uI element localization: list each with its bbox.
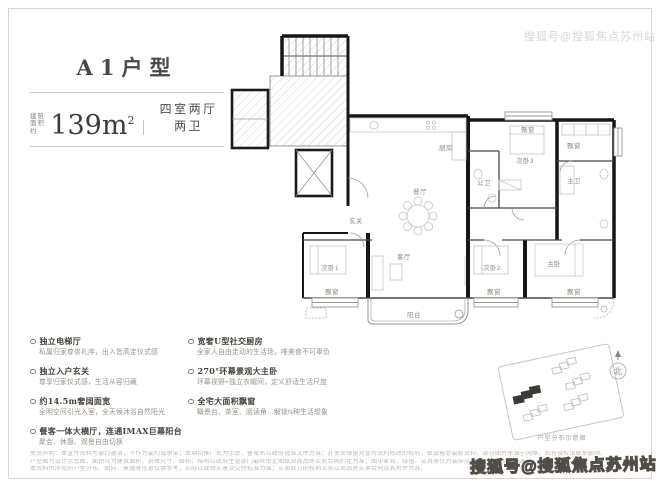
north-compass-icon: 北 <box>606 350 630 382</box>
bullet-icon <box>188 339 194 345</box>
bay-label-bed2: 飘窗 <box>487 287 501 296</box>
room-label-master: 主卧 <box>547 259 561 268</box>
bay-label-right: 飘窗 <box>567 141 581 150</box>
feature-title: 约14.5m奢阔面宽 <box>40 396 111 406</box>
feature-item: 餐客一体大横厅，连通IMAX巨幕阳台 聚会、休憩、观景自由切换 <box>30 426 185 447</box>
feature-title: 独立入户玄关 <box>40 366 90 376</box>
feature-desc: 环幕视野+独立衣帽间，定义舒适生活尺度 <box>197 378 368 387</box>
bullet-icon <box>188 399 194 405</box>
area-prefix-line2: 面积约 <box>30 120 48 135</box>
duct-shaft <box>232 90 268 148</box>
feature-title: 宽奢U型社交厨房 <box>198 336 263 346</box>
feature-desc: 全家人自由走动的生活场，唯美食不可辜负 <box>197 348 368 357</box>
key-plan-buildings <box>499 345 622 438</box>
stairs <box>282 36 348 76</box>
feature-item: 270°环幕景观大主卧 环幕视野+独立衣帽间，定义舒适生活尺度 <box>188 366 368 387</box>
furniture <box>310 118 610 290</box>
room-layout-label: 四室两厅两卫 <box>153 100 224 134</box>
feature-column-right: 宽奢U型社交厨房 全家人自由走动的生活场，唯美食不可辜负 270°环幕景观大主卧… <box>188 336 368 426</box>
room-label-bath-public: 公卫 <box>477 179 491 187</box>
area-sup: 2 <box>127 114 134 127</box>
bullet-icon <box>30 339 36 345</box>
feature-column-left: 独立电梯厅 私属归家尊崇礼序，出入皆高定仪式感 独立入户玄关 尊享归家仪式感，生… <box>30 336 185 456</box>
bay-label-bed1: 飘窗 <box>325 287 339 296</box>
area-prefix-line1: 建筑 <box>30 113 48 121</box>
balcony-outline <box>368 298 468 324</box>
room-label-bath-master: 主卫 <box>567 176 581 185</box>
public-corridor <box>270 76 348 146</box>
feature-desc: 尊享归家仪式感，生活从容归藏 <box>39 378 185 387</box>
key-plan-caption: 户型分布示意图 <box>500 433 624 442</box>
room-label-foyer: 玄关 <box>349 216 363 225</box>
room-label-kitchen: 厨房 <box>439 143 453 152</box>
area-row: 建筑 面积约 139m2 四室两厅两卫 <box>30 93 224 147</box>
compass-label: 北 <box>614 367 622 376</box>
divider <box>143 120 144 135</box>
room-label-living: 客厅 <box>397 252 411 261</box>
feature-title: 全宅大面积飘窗 <box>198 396 256 406</box>
feature-desc: 瞰景台、茶室、阅读角…解锁N种生活想象 <box>197 408 368 417</box>
bullet-icon <box>30 399 36 405</box>
feature-desc: 私属归家尊崇礼序，出入皆高定仪式感 <box>39 348 185 357</box>
area-value: 139m2 <box>50 109 134 138</box>
feature-item: 独立入户玄关 尊享归家仪式感，生活从容归藏 <box>30 366 185 387</box>
feature-item: 全宅大面积飘窗 瞰景台、茶室、阅读角…解锁N种生活想象 <box>188 396 368 417</box>
floorplan-drawing: 厨房 餐厅 玄关 公卫 次卧3 飘窗 飘窗 主卫 次卧1 客厅 次卧2 主卧 阳… <box>222 28 624 334</box>
feature-title: 独立电梯厅 <box>40 336 82 346</box>
page-title: A1户型 <box>30 52 224 93</box>
feature-title: 270°环幕景观大主卧 <box>198 366 278 376</box>
room-label-bed1: 次卧1 <box>321 263 339 272</box>
elevator <box>296 150 332 196</box>
feature-title: 餐客一体大横厅，连通IMAX巨幕阳台 <box>40 426 182 436</box>
bay-label-master: 飘窗 <box>567 287 581 296</box>
title-block: A1户型 建筑 面积约 139m2 四室两厅两卫 <box>30 52 224 147</box>
bullet-icon <box>30 429 36 435</box>
room-label-dining: 餐厅 <box>413 187 427 196</box>
bullet-icon <box>30 369 36 375</box>
feature-item: 宽奢U型社交厨房 全家人自由走动的生活场，唯美食不可辜负 <box>188 336 368 357</box>
watermark-bottom: 搜狐号@搜狐焦点苏州站 <box>470 450 657 477</box>
bullet-icon <box>188 369 194 375</box>
room-label-bed3: 次卧3 <box>516 156 534 165</box>
watermark-top: 搜狐号@搜狐焦点苏州站 <box>524 28 656 44</box>
feature-item: 约14.5m奢阔面宽 全明空间引光入室，全天候沐浴自然阳光 <box>30 396 185 417</box>
room-label-balcony: 阳台 <box>407 310 421 319</box>
floorplan-poster: A1户型 建筑 面积约 139m2 四室两厅两卫 <box>0 0 660 487</box>
feature-desc: 聚会、休憩、观景自由切换 <box>39 438 185 447</box>
highlighted-building <box>512 385 542 404</box>
room-label-bed2: 次卧2 <box>483 263 501 272</box>
feature-item: 独立电梯厅 私属归家尊崇礼序，出入皆高定仪式感 <box>30 336 185 357</box>
feature-desc: 全明空间引光入室，全天候沐浴自然阳光 <box>39 408 185 417</box>
bay-label-top: 飘窗 <box>521 125 535 134</box>
area-prefix: 建筑 面积约 <box>30 113 48 136</box>
